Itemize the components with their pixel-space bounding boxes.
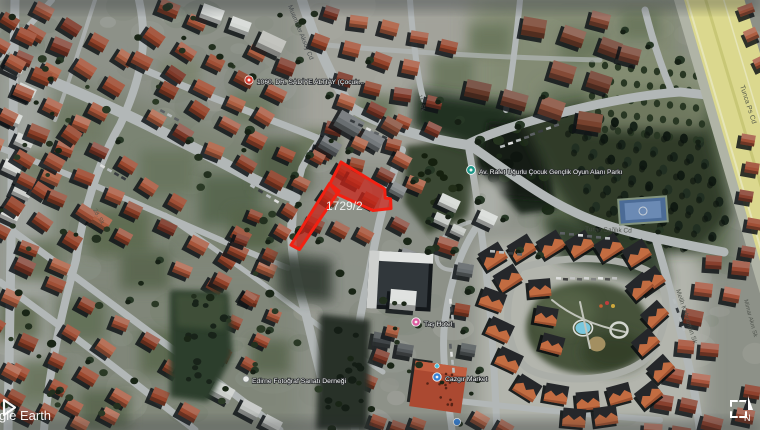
svg-text:N: N [744, 413, 751, 423]
svg-text:gle Earth: gle Earth [0, 408, 51, 423]
